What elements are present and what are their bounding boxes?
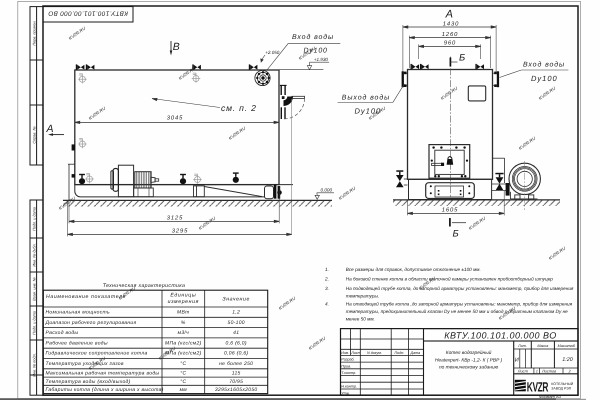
svg-text:Все размеры для справок, допус: Все размеры для справок, допустимое откл… <box>346 267 481 272</box>
svg-text:N докум.: N докум. <box>367 351 382 355</box>
svg-text:МПа (кгс/см2): МПа (кгс/см2) <box>165 351 202 357</box>
svg-text:МПа (кгс/см2): МПа (кгс/см2) <box>165 340 202 346</box>
svg-text:1:20: 1:20 <box>562 357 573 363</box>
svg-text:Разраб.: Разраб. <box>341 358 354 362</box>
svg-text:Пров.: Пров. <box>341 364 351 368</box>
svg-text:Б: Б <box>453 229 459 240</box>
svg-text:Значение: Значение <box>222 297 250 303</box>
svg-text:°С: °С <box>180 361 186 367</box>
svg-text:Dy100: Dy100 <box>304 47 328 54</box>
svg-text:Инв. № дубл.: Инв. № дубл. <box>33 243 37 266</box>
svg-text:Расход воды: Расход воды <box>46 330 79 336</box>
svg-text:МВт: МВт <box>177 310 190 316</box>
svg-text:А: А <box>445 9 453 21</box>
svg-text:Подп.: Подп. <box>395 351 405 355</box>
svg-text:Дата: Дата <box>410 351 421 355</box>
svg-text:КВТУ.100.101.00.000 ВО: КВТУ.100.101.00.000 ВО <box>444 330 557 340</box>
svg-text:0,06 (0,6): 0,06 (0,6) <box>224 351 248 357</box>
svg-text:Лит.: Лит. <box>517 344 527 348</box>
svg-text:м3/ч: м3/ч <box>178 330 189 336</box>
svg-text:Инв. № подл.: Инв. № подл. <box>33 353 37 377</box>
svg-text:Масса: Масса <box>537 344 548 348</box>
svg-text:3295х1605х2050: 3295х1605х2050 <box>215 387 258 393</box>
svg-text:Гидравлическое сопротивление к: Гидравлическое сопротивление котла <box>46 351 148 357</box>
svg-text:менее 50 мм.: менее 50 мм. <box>346 317 375 322</box>
svg-text:по техническому заданию: по техническому заданию <box>439 365 499 371</box>
svg-text:Номинальная мощность: Номинальная мощность <box>46 310 110 316</box>
svg-text:В: В <box>173 41 180 53</box>
svg-text:41: 41 <box>233 330 239 336</box>
svg-text:Котел водогрейный: Котел водогрейный <box>446 350 492 356</box>
svg-text:2.: 2. <box>324 277 329 282</box>
svg-text:Вход воды: Вход воды <box>523 61 565 69</box>
svg-text:ЗАВОД РЭП: ЗАВОД РЭП <box>551 387 572 391</box>
svg-text:1605: 1605 <box>442 207 459 214</box>
svg-text:измерения: измерения <box>168 299 199 305</box>
svg-text:3295: 3295 <box>172 228 189 235</box>
svg-text:Dy100: Dy100 <box>355 107 382 116</box>
svg-text:Утв.: Утв. <box>341 391 349 395</box>
svg-text:Взам. инв. №: Взам. инв. № <box>33 277 37 300</box>
svg-text:Листов: Листов <box>541 369 556 374</box>
svg-text:КОТЕЛЬНЫЙ: КОТЕЛЬНЫЙ <box>551 381 573 386</box>
svg-text:Максимальная рабочая температу: Максимальная рабочая температура воды <box>46 371 160 377</box>
svg-text:KVZR: KVZR <box>527 380 549 395</box>
svg-text:70/95: 70/95 <box>229 379 243 385</box>
svg-text:Вход воды: Вход воды <box>292 33 334 41</box>
svg-text:не более 250: не более 250 <box>219 361 253 367</box>
svg-text:Лист: Лист <box>350 351 361 355</box>
svg-text:50-100: 50-100 <box>228 320 245 326</box>
svg-text:1,2: 1,2 <box>232 310 240 316</box>
svg-text:3.: 3. <box>325 286 329 291</box>
svg-text:Диапазон рабочего регулировани: Диапазон рабочего регулирования <box>45 320 137 326</box>
svg-text:115: 115 <box>232 371 241 377</box>
svg-text:Температура воды (вход/выход): Температура воды (вход/выход) <box>46 379 131 385</box>
svg-text:Dy100: Dy100 <box>531 74 558 83</box>
svg-text:На подводящей трубе котла, до: На подводящей трубе котла, до запорной а… <box>346 286 574 291</box>
svg-text:1: 1 <box>536 369 538 374</box>
svg-text:3045: 3045 <box>167 115 184 122</box>
svg-text:%: % <box>181 320 186 326</box>
svg-text:Т.контр.: Т.контр. <box>341 371 356 375</box>
svg-text:Подп. и дата: Подп. и дата <box>33 207 37 231</box>
svg-text:3125: 3125 <box>167 215 184 222</box>
svg-text:1260: 1260 <box>442 31 459 38</box>
svg-text:температуры.: температуры. <box>346 294 380 299</box>
svg-text:1430: 1430 <box>443 20 460 27</box>
svg-text:мм: мм <box>180 387 188 393</box>
svg-text:Перв. примен.: Перв. примен. <box>33 20 37 45</box>
svg-text:На отводящей трубе котла ,до з: На отводящей трубе котла ,до запорной ар… <box>346 302 573 307</box>
svg-text:Справ. №: Справ. № <box>33 126 37 143</box>
svg-text:Масштаб: Масштаб <box>558 344 576 348</box>
svg-text:Температура уходящих газов: Температура уходящих газов <box>46 361 124 367</box>
svg-text:Рабочее давление воды: Рабочее давление воды <box>46 340 108 346</box>
svg-text:°С: °С <box>180 371 186 377</box>
svg-text:0.000: 0.000 <box>321 187 333 192</box>
svg-text:температуры, предохранительный: температуры, предохранительный клапан Dу… <box>346 309 568 314</box>
svg-text:1.: 1. <box>325 267 329 272</box>
svg-text:960: 960 <box>444 40 456 47</box>
svg-text:На боковой стенке котла в обла: На боковой стенке котла в области топочн… <box>346 277 554 282</box>
svg-text:Подп. и дата: Подп. и дата <box>33 311 37 335</box>
svg-text:0,6 (6,0): 0,6 (6,0) <box>226 340 247 346</box>
svg-text:И: И <box>515 358 519 364</box>
svg-text:см. п. 2: см. п. 2 <box>221 103 257 113</box>
svg-text:+1.930: +1.930 <box>314 57 329 62</box>
svg-text:Heatexpert- КВр -1,2- К ( РВР: Heatexpert- КВр -1,2- К ( РВР ) <box>435 358 503 364</box>
svg-text:Б: Б <box>459 53 465 64</box>
svg-text:+2.050: +2.050 <box>265 50 280 55</box>
svg-text:Выход воды: Выход воды <box>342 94 390 102</box>
svg-text:Н.контр.: Н.контр. <box>341 385 357 389</box>
svg-text:Габариты котла (длина х ширина: Габариты котла (длина х ширина х высота) <box>46 387 164 393</box>
svg-text:Техническая характеристика: Техническая характеристика <box>103 283 186 289</box>
svg-text:4.: 4. <box>325 302 329 307</box>
svg-text:°С: °С <box>180 379 186 385</box>
svg-text:Изм.: Изм. <box>341 351 349 355</box>
svg-text:Наименование показателя: Наименование показателя <box>46 294 126 300</box>
svg-text:Единицы: Единицы <box>170 293 196 299</box>
svg-text:А: А <box>46 123 54 135</box>
svg-text:КВТУ.100.101.00.000 ВО: КВТУ.100.101.00.000 ВО <box>48 9 128 16</box>
svg-text:Лист: Лист <box>517 369 529 374</box>
